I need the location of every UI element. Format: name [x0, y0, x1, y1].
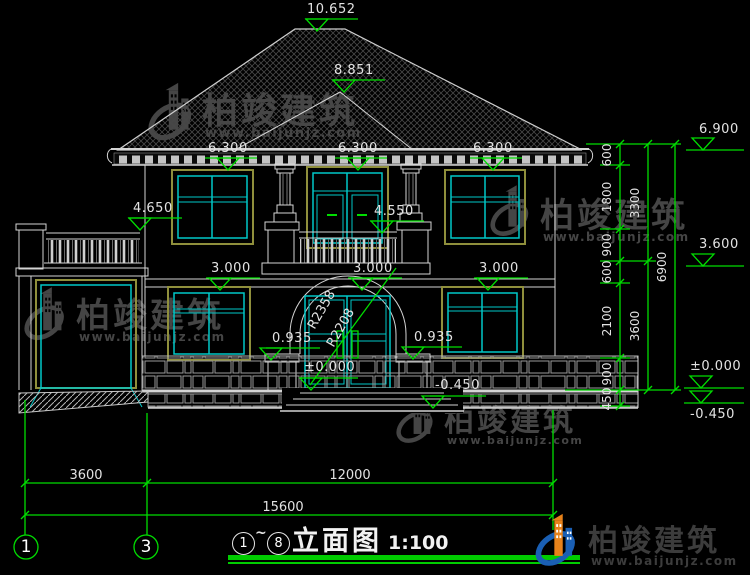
dim-600-a: 600: [601, 144, 613, 167]
annotation-geometry: [0, 0, 750, 575]
drawing-scale: 1:100: [388, 534, 448, 553]
dim-900-b: 900: [601, 363, 613, 386]
grid-bubble-1: 1: [21, 537, 32, 557]
elev-sill-right: 0.935: [414, 331, 454, 344]
elev-right-top: 6.900: [699, 123, 739, 136]
dim-1800: 1800: [601, 182, 613, 213]
elev-eave-1: 6.300: [208, 142, 248, 155]
elev-sill-left: 0.935: [272, 332, 312, 345]
dim-450: 450: [601, 388, 613, 411]
elev-entry: ±0.000: [304, 361, 355, 374]
dim-12000: 12000: [329, 469, 370, 482]
cad-elevation-drawing: 柏竣建筑 www.baijunjz.com 柏竣建筑 www.baijunjz.…: [0, 0, 750, 575]
dim-600-b: 600: [601, 261, 613, 284]
brand-logo-icon: [534, 512, 584, 568]
elevation-triangles: [129, 19, 714, 408]
elev-floor-2: 3.000: [353, 262, 393, 275]
dim-900-a: 900: [601, 234, 613, 257]
elev-hip: 8.851: [334, 64, 374, 77]
dim-3600-h: 3600: [69, 469, 102, 482]
elevation-lines: [128, 19, 744, 403]
dim-15600: 15600: [262, 501, 303, 514]
elev-ridge: 10.652: [307, 3, 356, 16]
dim-3600-v: 3600: [629, 311, 641, 342]
elev-right-mid: 3.600: [699, 238, 739, 251]
elev-eave-3: 6.300: [473, 142, 513, 155]
elev-grade-center: -0.450: [435, 379, 480, 392]
elev-floor-1: 3.000: [211, 262, 251, 275]
drawing-title: 立面图: [292, 528, 382, 555]
title-tilde: ~: [255, 526, 267, 540]
grid-bubble-3: 3: [141, 537, 152, 557]
brand-logo-site: www.baijunjz.com: [591, 554, 738, 568]
elev-right-grade: -0.450: [690, 408, 735, 421]
elev-eave-2: 6.300: [338, 142, 378, 155]
elev-parapet: 4.650: [133, 202, 173, 215]
dim-6900: 6900: [656, 252, 668, 283]
elev-floor-3: 3.000: [479, 262, 519, 275]
title-underline-thin: [228, 562, 580, 564]
title-underline-thick: [228, 555, 580, 560]
elev-right-floor: ±0.000: [690, 360, 741, 373]
dim-2100: 2100: [601, 306, 613, 337]
dim-3300: 3300: [629, 188, 641, 219]
elev-balcony: 4.550: [374, 205, 414, 218]
brand-logo: 柏竣建筑 www.baijunjz.com: [534, 512, 750, 572]
title-grid-from: 1: [232, 532, 255, 555]
title-grid-to: 8: [267, 532, 290, 555]
